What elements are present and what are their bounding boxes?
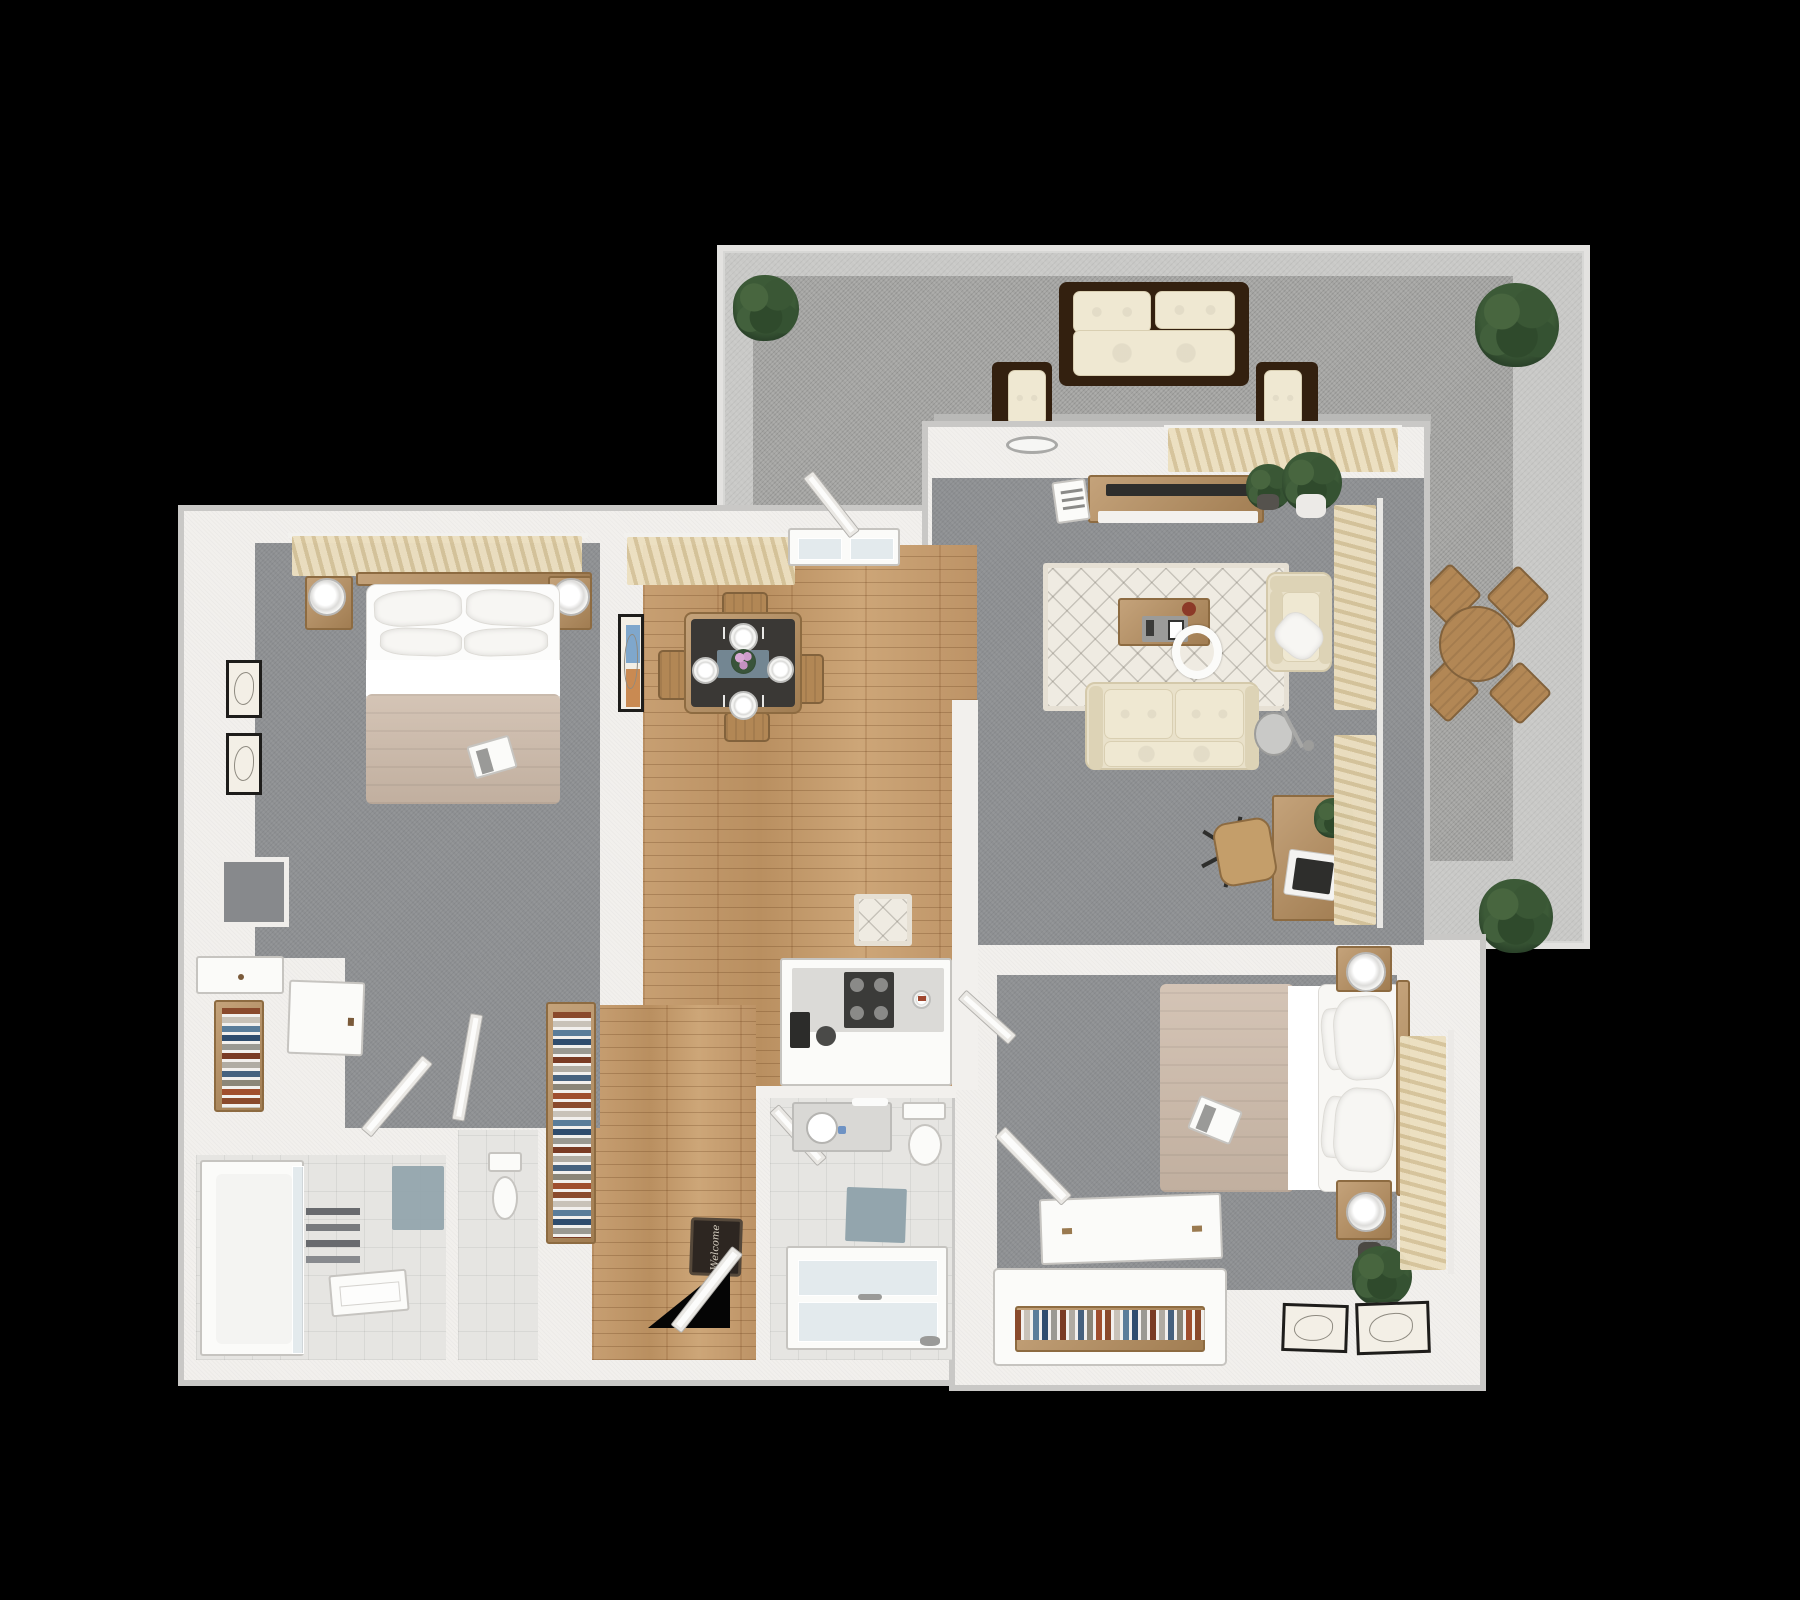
bedroom1-tv-panel	[219, 857, 289, 927]
chair-cushion	[1264, 370, 1302, 426]
decor-ring	[1172, 625, 1222, 679]
living-curtain-lower	[1334, 735, 1376, 925]
patio-plant-top-left	[733, 275, 799, 341]
wc-toilet-tank	[488, 1152, 522, 1172]
arc-floor-lamp-base	[1303, 740, 1314, 751]
bed2-floor-art	[1281, 1303, 1349, 1353]
cutlery	[723, 695, 725, 707]
bathroom2-sink	[806, 1112, 838, 1144]
shower-glass-panel	[798, 1302, 938, 1342]
bed2-pillow	[1331, 1086, 1397, 1174]
bed2-curtain	[1400, 1036, 1446, 1270]
bathroom2-toilet-tank	[902, 1102, 946, 1120]
cooktop	[844, 972, 894, 1028]
bed2-blanket	[1160, 984, 1294, 1192]
patio-plant-top-right	[1475, 283, 1559, 367]
cutlery	[762, 695, 764, 707]
bed1-pillow	[465, 588, 555, 629]
bathroom2-towels	[852, 1098, 888, 1106]
shower-head	[920, 1336, 940, 1346]
towel-bar	[306, 1208, 360, 1215]
linens	[553, 1012, 591, 1238]
cutlery	[762, 627, 764, 639]
table-flowers	[731, 649, 756, 674]
book-spine	[476, 748, 494, 774]
dining-curtain	[627, 537, 795, 585]
decor-red	[918, 996, 926, 1001]
dining-wall-art	[618, 614, 644, 712]
outdoor-chair-left	[992, 362, 1052, 430]
place-setting-north	[729, 623, 758, 652]
magazine-stack	[1051, 478, 1091, 524]
apartment-floor-plan-scene: Welcome	[0, 0, 1800, 1600]
bedroom1-dresser	[196, 956, 284, 994]
art-color-blue	[626, 625, 640, 663]
bed1-pillow	[373, 588, 463, 629]
place-setting-east	[767, 656, 794, 683]
bathroom2-toilet-bowl	[908, 1124, 942, 1166]
bathroom2-cup	[838, 1126, 846, 1134]
armchair-arm-right	[1319, 590, 1332, 664]
kettle	[816, 1026, 836, 1046]
place-setting-west	[692, 657, 719, 684]
wardrobe-handle	[348, 1018, 354, 1026]
bed2-lamp-top	[1346, 952, 1386, 992]
entry-curtain	[1168, 428, 1398, 472]
bed1-sheet	[366, 660, 560, 696]
towel-bar	[306, 1240, 360, 1247]
bathroom1-mat	[392, 1166, 444, 1230]
patio-sliding-door	[788, 528, 900, 566]
hallway-wood-floor	[592, 1005, 756, 1360]
sofa-back-cushion-left	[1104, 689, 1173, 739]
living-corner-plant-pot	[1296, 494, 1326, 518]
console-plant-pot	[1257, 494, 1279, 510]
bathroom2-faucet	[842, 1108, 851, 1117]
entry-ceiling-light	[1006, 436, 1058, 454]
towel-bar	[306, 1224, 360, 1231]
magazine-lines	[1063, 504, 1085, 510]
kitchen-side-wall	[952, 700, 978, 1090]
burner	[850, 978, 864, 992]
kitchen-rug	[854, 894, 912, 946]
tv-console	[1088, 475, 1264, 523]
dresser-knob	[238, 974, 244, 980]
bathroom2-mat	[845, 1187, 907, 1243]
sofa-back-cushion-right	[1175, 689, 1244, 739]
burner	[850, 1006, 864, 1020]
armchair	[1266, 572, 1332, 672]
bath-bench	[328, 1269, 409, 1318]
bedroom1-wardrobe-panel	[287, 980, 366, 1057]
place-setting-south	[729, 691, 758, 720]
bed2-sliding-panel	[1039, 1193, 1223, 1265]
bedroom1-linen-shelf	[214, 1000, 264, 1112]
laptop-keyboard	[1292, 858, 1334, 895]
loveseat-seat-cushion	[1073, 330, 1235, 376]
linens	[222, 1008, 260, 1108]
tub-basin	[216, 1174, 292, 1344]
bed2-floor-art	[1355, 1301, 1431, 1356]
bedroom1-curtain	[292, 536, 582, 576]
panel-handle	[1192, 1226, 1202, 1232]
outdoor-chair-right	[1256, 362, 1318, 430]
bed1-lamp-left	[308, 578, 346, 616]
tub-glass-panel	[292, 1166, 304, 1354]
sofa	[1085, 682, 1259, 770]
patio-plant-bottom-right	[1479, 879, 1553, 953]
hall-linen-shelf	[546, 1002, 596, 1244]
kitchen-island	[780, 958, 952, 1086]
chair-cushion	[1008, 370, 1046, 426]
panel-handle	[1062, 1228, 1072, 1234]
sliding-door-pane	[850, 538, 894, 560]
bed1-pillow	[380, 627, 463, 658]
loveseat-back-cushion-right	[1155, 291, 1235, 329]
tv-screen	[1106, 484, 1250, 496]
bedroom1-wall-art	[226, 733, 262, 795]
bench-towel	[339, 1281, 401, 1306]
loveseat-back-cushion-left	[1073, 291, 1151, 333]
book-spine	[1195, 1104, 1216, 1133]
decor-bowl	[1182, 602, 1196, 616]
toaster	[790, 1012, 810, 1048]
bed2-lamp-bottom	[1346, 1192, 1386, 1232]
burner	[874, 978, 888, 992]
burner	[874, 1006, 888, 1020]
art-color-orange	[626, 669, 640, 707]
bed2-curtain-rod	[1448, 1030, 1454, 1274]
magazine-lines	[1061, 488, 1083, 494]
kitchen-bath-wall	[756, 1086, 956, 1098]
bathtub	[200, 1160, 304, 1356]
sofa-seat-band	[1104, 741, 1244, 767]
magazine-lines	[1062, 496, 1084, 502]
bed2-pillow	[1331, 994, 1397, 1082]
living-curtain-upper	[1334, 505, 1376, 710]
wc-toilet-bowl	[492, 1176, 518, 1220]
bed1-blanket	[366, 694, 560, 804]
wardrobe-books	[1015, 1310, 1205, 1340]
office-chair-seat	[1211, 815, 1279, 888]
bed1-pillow	[464, 627, 549, 658]
outdoor-loveseat	[1059, 282, 1249, 386]
living-window-track	[1377, 498, 1383, 928]
bed2-wardrobe	[995, 1270, 1225, 1364]
shower-glass-panel	[798, 1260, 938, 1296]
cutlery	[723, 627, 725, 639]
shower	[786, 1246, 948, 1350]
bedroom1-wall-art	[226, 660, 262, 718]
console-drawers	[1098, 511, 1258, 523]
shower-handle	[858, 1294, 882, 1300]
sofa-arm-left	[1089, 686, 1103, 770]
sliding-door-pane	[798, 538, 842, 560]
towel-bar	[306, 1256, 360, 1263]
tray-items	[1146, 620, 1154, 636]
